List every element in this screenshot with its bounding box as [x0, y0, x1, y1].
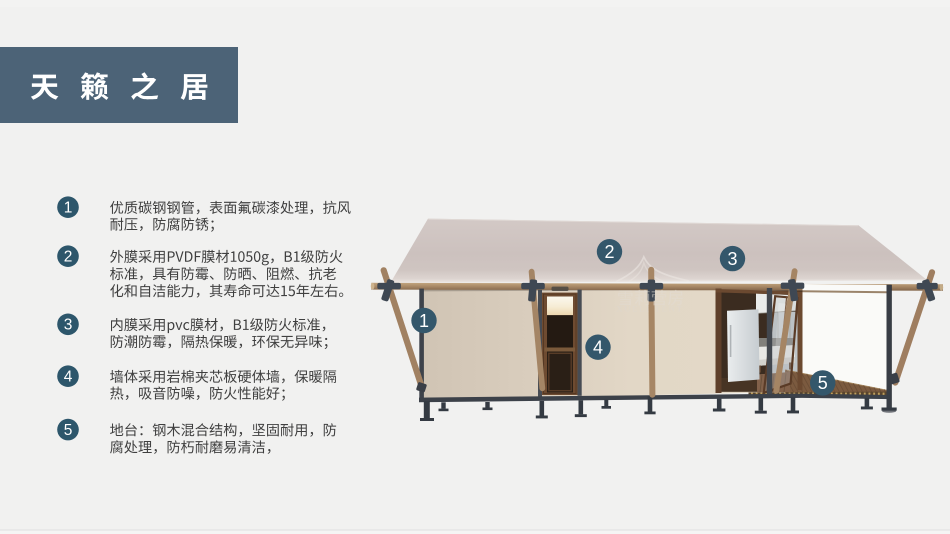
svg-text:2: 2: [604, 242, 614, 262]
svg-text:4: 4: [593, 338, 603, 358]
svg-text:2: 2: [64, 249, 73, 266]
svg-text:XUELI TENT: XUELI TENT: [616, 304, 683, 314]
svg-text:5: 5: [64, 422, 73, 439]
svg-text:3: 3: [727, 249, 737, 269]
svg-text:5: 5: [818, 373, 828, 393]
svg-text:4: 4: [64, 369, 73, 386]
svg-text:3: 3: [64, 317, 73, 334]
svg-text:1: 1: [64, 200, 73, 217]
svg-text:1: 1: [419, 311, 429, 331]
